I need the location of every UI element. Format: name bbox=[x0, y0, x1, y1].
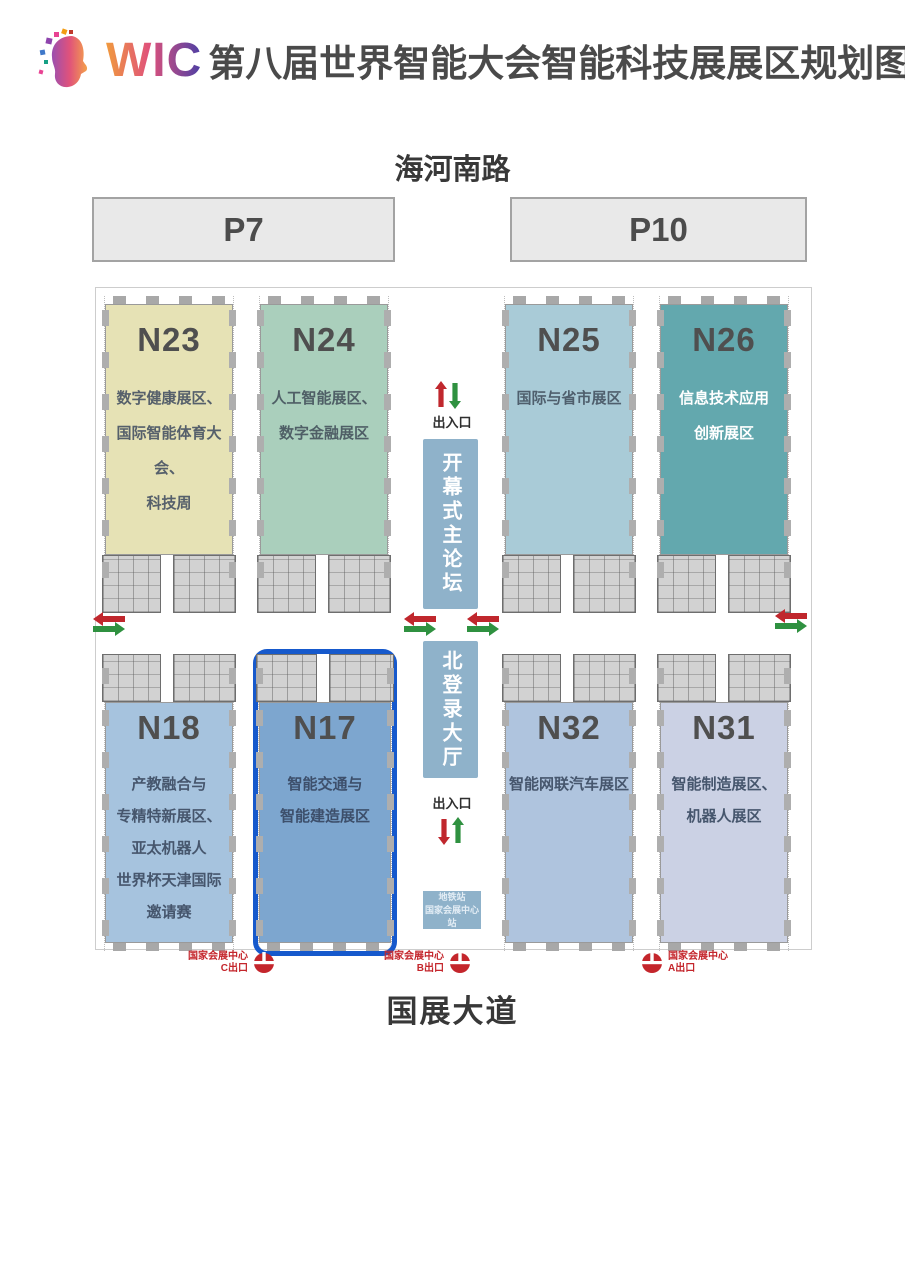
hall-facility-zone bbox=[505, 555, 633, 613]
hall-number: N25 bbox=[537, 321, 601, 359]
hall-n25[interactable]: N25 国际与省市展区 bbox=[504, 296, 634, 613]
hall-desc-line: 邀请赛 bbox=[106, 897, 232, 929]
tianjin-metro-logo-icon bbox=[641, 952, 663, 974]
hall-structure-bottom bbox=[267, 943, 383, 951]
entrance-label-top: 出入口 bbox=[422, 412, 482, 431]
hall-area: N25 国际与省市展区 bbox=[505, 304, 633, 555]
entrance-arrows-icon bbox=[435, 380, 461, 410]
hall-facility-zone bbox=[105, 555, 233, 613]
metro-exit-b: 国家会展中心 B出口 bbox=[366, 951, 471, 975]
metro-station-line1: 地铁站 bbox=[423, 891, 481, 904]
hall-desc-line: 科技周 bbox=[106, 486, 232, 521]
hall-facility-zone bbox=[505, 654, 633, 702]
hall-number: N24 bbox=[292, 321, 356, 359]
hall-desc-line: 数字金融展区 bbox=[261, 416, 387, 451]
hall-area: N31 智能制造展区、机器人展区 bbox=[660, 702, 788, 943]
page-title: 第八届世界智能大会智能科技展展区规划图 bbox=[208, 33, 905, 87]
hall-number: N23 bbox=[137, 321, 201, 359]
hall-desc-line: 亚太机器人 bbox=[106, 833, 232, 865]
hall-description: 数字健康展区、国际智能体育大会、科技周 bbox=[106, 381, 232, 521]
hall-facility-zone bbox=[660, 555, 788, 613]
metro-exit-c-label: 国家会展中心 C出口 bbox=[170, 951, 248, 975]
hall-number: N18 bbox=[137, 709, 201, 747]
metro-exit-a-label: 国家会展中心 A出口 bbox=[668, 951, 746, 975]
hall-desc-line: 智能建造展区 bbox=[260, 801, 390, 833]
hall-facility-zone bbox=[259, 654, 391, 702]
hall-area: N26 信息技术应用创新展区 bbox=[660, 304, 788, 555]
entrance-label-bottom: 出入口 bbox=[422, 793, 482, 812]
hall-desc-line: 世界杯天津国际 bbox=[106, 865, 232, 897]
hall-desc-line: 专精特新展区、 bbox=[106, 801, 232, 833]
hall-structure-right bbox=[229, 668, 236, 937]
hall-desc-line: 智能网联汽车展区 bbox=[506, 769, 632, 801]
hall-description: 智能交通与智能建造展区 bbox=[260, 769, 390, 833]
hall-facility-zone bbox=[260, 555, 388, 613]
hall-desc-line: 人工智能展区、 bbox=[261, 381, 387, 416]
hall-structure-left bbox=[657, 668, 664, 937]
north-registration-hall-box: 北登录大厅 bbox=[423, 641, 478, 778]
hall-structure-top bbox=[513, 296, 625, 304]
metro-exit-c: 国家会展中心 C出口 bbox=[170, 951, 275, 975]
hall-structure-bottom bbox=[513, 943, 625, 951]
tianjin-metro-logo-icon bbox=[253, 952, 275, 974]
two-way-arrows-icon bbox=[467, 612, 499, 636]
site-map: N23 数字健康展区、国际智能体育大会、科技周 N24 人工智能展区、数字金融展… bbox=[95, 287, 812, 950]
north-registration-hall-label: 北登录大厅 bbox=[436, 650, 465, 770]
hall-n31[interactable]: N31 智能制造展区、机器人展区 bbox=[659, 654, 789, 951]
hall-number: N32 bbox=[537, 709, 601, 747]
hall-structure-left bbox=[257, 310, 264, 599]
hall-structure-left bbox=[102, 668, 109, 937]
metro-station-box: 地铁站 国家会展中心站 bbox=[423, 891, 481, 929]
hall-desc-line: 国际与省市展区 bbox=[506, 381, 632, 416]
metro-station-line2: 国家会展中心站 bbox=[423, 904, 481, 930]
road-label-north: 海河南路 bbox=[0, 146, 905, 188]
hall-structure-right bbox=[629, 668, 636, 937]
hall-desc-line: 国际智能体育大会、 bbox=[106, 416, 232, 486]
hall-structure-right bbox=[384, 310, 391, 599]
hall-description: 人工智能展区、数字金融展区 bbox=[261, 381, 387, 451]
hall-structure-right bbox=[784, 668, 791, 937]
hall-description: 智能网联汽车展区 bbox=[506, 769, 632, 801]
hall-number: N17 bbox=[293, 709, 357, 747]
hall-area: N32 智能网联汽车展区 bbox=[505, 702, 633, 943]
hall-structure-left bbox=[102, 310, 109, 599]
parking-p10: P10 bbox=[510, 197, 807, 262]
hall-area: N18 产教融合与专精特新展区、亚太机器人世界杯天津国际邀请赛 bbox=[105, 702, 233, 943]
hall-desc-line: 产教融合与 bbox=[106, 769, 232, 801]
hall-n24[interactable]: N24 人工智能展区、数字金融展区 bbox=[259, 296, 389, 613]
metro-exit-b-label: 国家会展中心 B出口 bbox=[366, 951, 444, 975]
parking-p7: P7 bbox=[92, 197, 395, 262]
hall-n32[interactable]: N32 智能网联汽车展区 bbox=[504, 654, 634, 951]
hall-structure-top bbox=[668, 296, 780, 304]
hall-structure-bottom bbox=[668, 943, 780, 951]
hall-description: 信息技术应用创新展区 bbox=[661, 381, 787, 451]
hall-structure-left bbox=[256, 668, 263, 937]
two-way-arrows-icon bbox=[93, 612, 125, 636]
wic-logo-text: WIC bbox=[106, 33, 202, 88]
metro-exit-a: 国家会展中心 A出口 bbox=[641, 951, 746, 975]
hall-number: N26 bbox=[692, 321, 756, 359]
hall-n26[interactable]: N26 信息技术应用创新展区 bbox=[659, 296, 789, 613]
hall-desc-line: 创新展区 bbox=[661, 416, 787, 451]
road-label-south: 国展大道 bbox=[0, 986, 905, 1031]
hall-structure-left bbox=[502, 310, 509, 599]
hall-facility-zone bbox=[660, 654, 788, 702]
hall-desc-line: 信息技术应用 bbox=[661, 381, 787, 416]
hall-n23[interactable]: N23 数字健康展区、国际智能体育大会、科技周 bbox=[104, 296, 234, 613]
hall-description: 国际与省市展区 bbox=[506, 381, 632, 416]
hall-structure-right bbox=[784, 310, 791, 599]
hall-structure-right bbox=[387, 668, 394, 937]
hall-structure-left bbox=[657, 310, 664, 599]
opening-forum-box: 开幕式主论坛 bbox=[423, 439, 478, 609]
hall-description: 智能制造展区、机器人展区 bbox=[661, 769, 787, 833]
hall-n18[interactable]: N18 产教融合与专精特新展区、亚太机器人世界杯天津国际邀请赛 bbox=[104, 654, 234, 951]
entrance-arrows-icon bbox=[438, 816, 464, 846]
hall-area: N17 智能交通与智能建造展区 bbox=[259, 702, 391, 943]
hall-area: N23 数字健康展区、国际智能体育大会、科技周 bbox=[105, 304, 233, 555]
hall-structure-top bbox=[268, 296, 380, 304]
tianjin-metro-logo-icon bbox=[449, 952, 471, 974]
hall-desc-line: 智能制造展区、 bbox=[661, 769, 787, 801]
hall-n17-selected[interactable]: N17 智能交通与智能建造展区 bbox=[258, 654, 392, 951]
hall-number: N31 bbox=[692, 709, 756, 747]
hall-structure-right bbox=[629, 310, 636, 599]
hall-desc-line: 智能交通与 bbox=[260, 769, 390, 801]
hall-structure-bottom bbox=[113, 943, 225, 951]
wic-head-logo-icon bbox=[38, 28, 100, 92]
hall-desc-line: 数字健康展区、 bbox=[106, 381, 232, 416]
hall-facility-zone bbox=[105, 654, 233, 702]
two-way-arrows-icon bbox=[775, 609, 807, 633]
hall-structure-left bbox=[502, 668, 509, 937]
exhibition-plan-page: WIC 第八届世界智能大会智能科技展展区规划图 海河南路 P7 P10 N23 … bbox=[0, 0, 905, 1280]
title-bar: WIC 第八届世界智能大会智能科技展展区规划图 bbox=[38, 28, 905, 92]
hall-area: N24 人工智能展区、数字金融展区 bbox=[260, 304, 388, 555]
hall-desc-line: 机器人展区 bbox=[661, 801, 787, 833]
two-way-arrows-icon bbox=[404, 612, 436, 636]
hall-structure-right bbox=[229, 310, 236, 599]
hall-structure-top bbox=[113, 296, 225, 304]
opening-forum-label: 开幕式主论坛 bbox=[436, 452, 465, 596]
hall-description: 产教融合与专精特新展区、亚太机器人世界杯天津国际邀请赛 bbox=[106, 769, 232, 929]
